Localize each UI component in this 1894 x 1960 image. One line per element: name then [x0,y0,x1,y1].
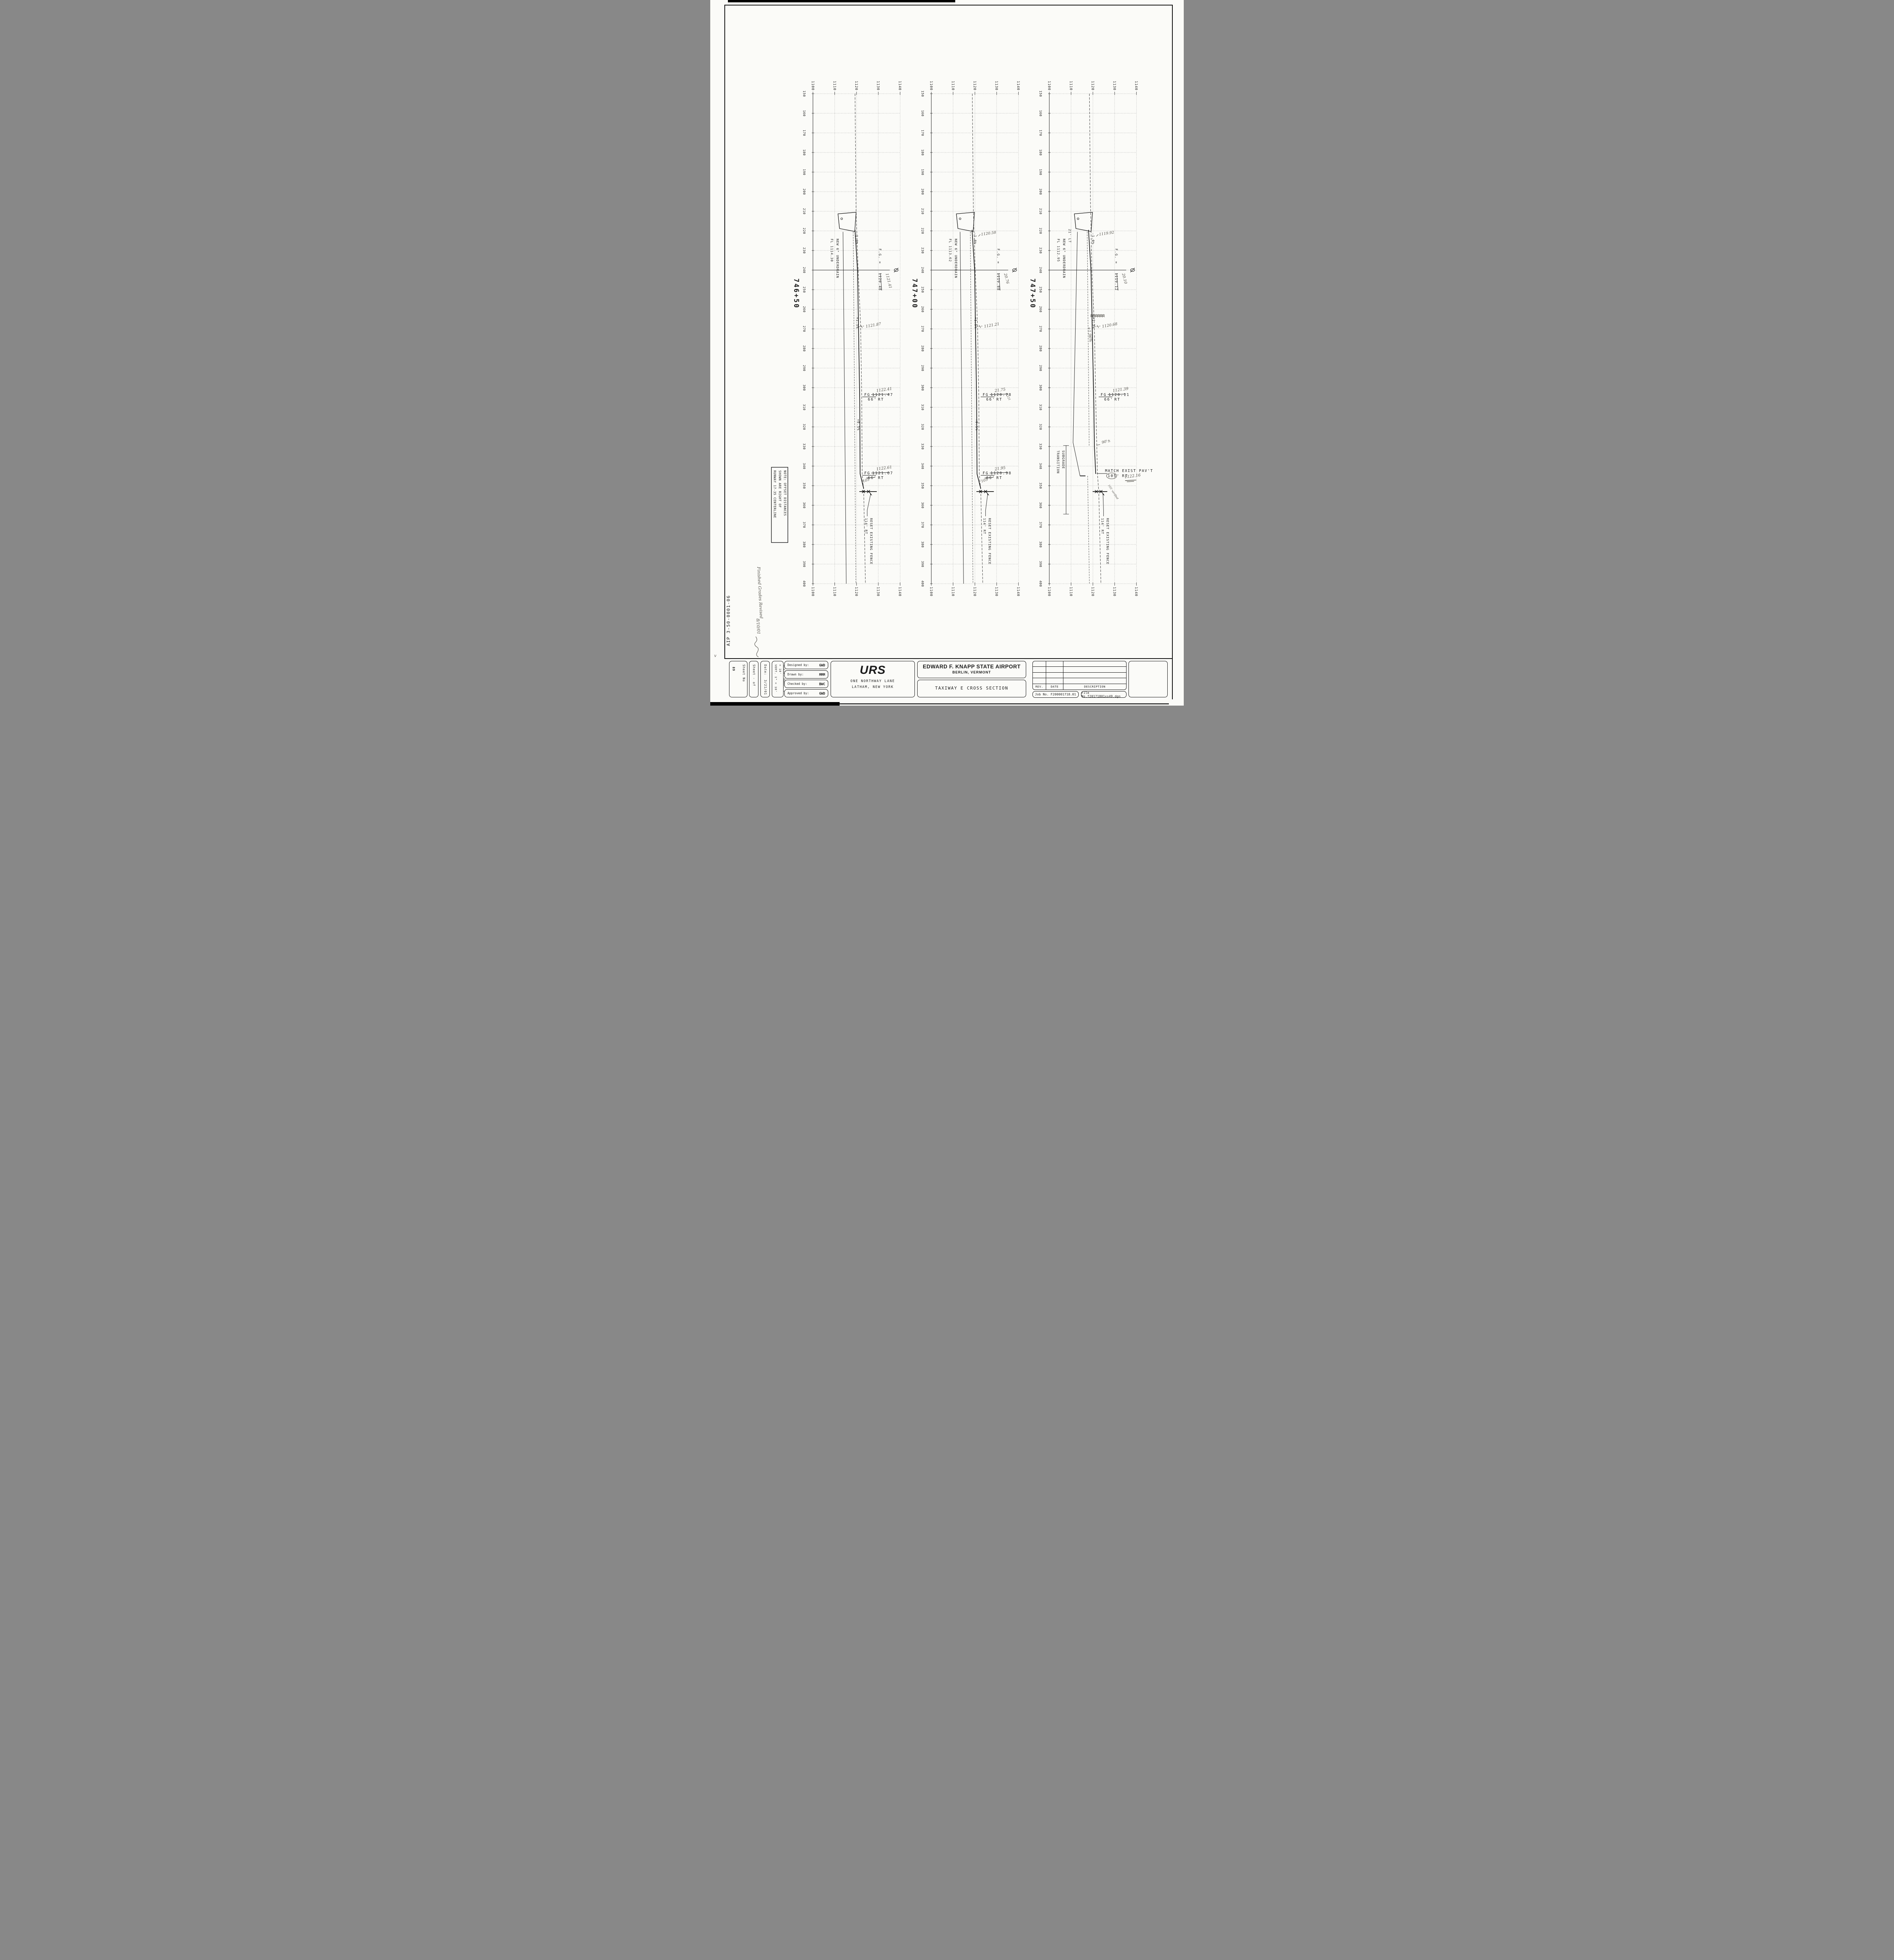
station-label: 150 [802,91,806,97]
designed-by-value: GWD [819,663,825,667]
station-label: 200 [802,189,806,195]
station-label: 230 [1039,247,1043,254]
station-label: 300 [1039,385,1043,391]
approved-by-box: Approved by:GWD [784,689,828,697]
drawn-by-box: Drawn by:MMM [784,670,828,679]
station-label: 220 [1039,228,1043,234]
underdrain-trench-line [843,232,846,584]
underdrain-pipe-circle [841,218,843,220]
station-label: 300 [921,385,925,391]
elevation-label-top: 1120 [854,81,858,91]
existing-pavement-dashed-line [1088,476,1090,584]
revision-table: REV. DATE DESCRIPTION [1032,661,1127,690]
station-label: 330 [921,443,925,450]
rev-cell [1033,678,1046,684]
drawing-title-box: TAXIWAY E CROSS SECTION [917,680,1026,697]
rev-cell [1046,673,1063,678]
station-label: 320 [1039,424,1043,430]
elevation-label-bottom: 1100 [1047,587,1051,597]
station-label: 310 [1039,404,1043,410]
margin-check-mark: v [714,654,717,658]
designed-by-box: Designed by:GWD [784,661,828,669]
elevation-label-bottom: 1110 [832,587,836,597]
elevation-label-bottom: 1140 [1134,587,1138,597]
elevation-label-top: 1140 [1134,81,1138,91]
rev-cell [1033,667,1046,672]
underdrain-lt-note: 21' LT [1068,229,1072,243]
fg-callout-printed-value: 1120.98 [991,471,1012,475]
station-label: 290 [921,365,925,371]
elevation-label-top: 1130 [994,81,998,91]
station-label: 260 [921,306,925,312]
station-label: 320 [802,424,806,430]
underdrain-label: NEW 6" UNDERDRAIN [1062,239,1066,278]
designed-by-label: Designed by: [787,663,809,667]
elevation-label-top: 1140 [898,81,902,91]
fg-cl-printed-value: 1120.48 [878,273,882,291]
station-label: 210 [921,208,925,214]
date-value: Date: 3/21/01 [764,664,767,695]
station-label: 270 [802,326,806,332]
rev-cell [1063,667,1126,672]
station-label: 350 [802,483,806,489]
fg-callout-prefix: FG [864,393,870,397]
rev-header-date: DATE [1046,684,1063,690]
dim-note-handwritten: 90'± [1101,439,1111,445]
fg-cl-printed-value: 1119.12 [1114,273,1118,291]
station-label: 200 [1039,189,1043,195]
station-label: 330 [802,443,806,450]
rev-cell [1063,673,1126,678]
station-label: 360 [921,502,925,508]
station-label: 310 [921,404,925,410]
station-label: 290 [802,365,806,371]
fg-callout-revised-handwritten: 21.95 [994,466,1006,472]
fg-cl-revised-handwritten: 20.10 [1121,272,1128,284]
underdrain-trench-line [960,232,963,584]
checked-by-box: Checked by:BWC [784,680,828,688]
note-line: SHOWN ARE RIGHT OF [778,470,782,508]
reset-fence-offset: 114' RT [1101,518,1105,535]
date-box: Date: 3/21/01 [760,661,770,697]
slope-label-left: -1.0% [1091,233,1095,245]
elevation-label-top: 1110 [832,81,836,91]
fg-cl-revised-handwritten: 20.76 [1003,272,1010,284]
sheet-of-label: Sheet - of [752,664,756,686]
checked-by-value: BWC [819,682,825,686]
fg-callout-rt: RT [1114,397,1120,402]
match-exist-offset: 105' [1108,474,1120,478]
elevation-label-bottom: 1110 [951,587,954,597]
scale-box: Scale: HORZ. 1" = 10'VERT. 1" = 10' [772,661,784,697]
firm-logo: URS [831,664,914,676]
fg-callout-revised-handwritten: 21.75 [994,387,1006,393]
station-label: 250 [921,287,925,293]
station-label: 210 [1039,208,1043,214]
project-location: BERLIN, VERMONT [918,670,1026,674]
checked-by-label: Checked by: [787,682,807,686]
fg-cl-label: F.G. = [878,249,882,264]
sheet-number-box: 89 Sheet No [729,661,747,697]
elevation-label-bottom: 1130 [876,587,880,597]
station-label: 220 [921,228,925,234]
station-label: 280 [921,345,925,352]
underdrain-outline [1074,212,1092,232]
station-label: 240 [802,267,806,273]
fg-callout-prefix: FG [983,393,989,397]
elevation-label-bottom: 1120 [854,587,858,597]
station-label: 390 [921,561,925,567]
note-line: NOTE: OFFSET DISTANCES [783,470,787,516]
sheet-number: 89 [732,667,735,671]
rev-cell [1046,678,1063,684]
station-label: 360 [802,502,806,508]
reset-fence-label: RESET EXISTING FENCE [869,518,873,565]
fg-cl-printed-value: 1119.88 [996,273,1000,291]
station-label: 390 [1039,561,1043,567]
underdrain-outline [838,212,856,232]
underdrain-label: NEW 6" UNDERDRAIN [954,239,958,278]
fg-callout-rt: RT [996,476,1002,480]
station-label: 280 [1039,345,1043,352]
fg-cl-revised-handwritten: 1121.41 [885,273,893,289]
match-exist-label: MATCH EXIST PAV'T [1105,469,1153,473]
sheet-of-box: Sheet - of [749,661,758,697]
project-name-box: EDWARD F. KNAPP STATE AIRPORT BERLIN, VE… [917,661,1026,678]
cross-section-plot: 1100110011101110112011201130113011401140… [710,0,1184,706]
elevation-label-bottom: 1120 [1090,587,1094,597]
section-station-label: 747+50 [1029,278,1036,309]
station-label: 230 [802,247,806,254]
fence-leader [985,494,987,510]
elevation-label-top: 1110 [1069,81,1072,91]
station-label: 380 [802,541,806,548]
fence-leader-arrowhead [870,492,872,496]
station-label: 400 [921,581,925,587]
fg-callout-rt: RT [996,397,1002,402]
station-label: 180 [802,149,806,156]
subgrade-label: TRANSITION [1056,450,1060,474]
station-label: 170 [1039,130,1043,136]
station-label: 250 [802,287,806,293]
exist-elev-handwritten-mid: 1121.21 [984,322,1000,329]
elevation-label-top: 1100 [1047,81,1051,91]
station-label: 310 [802,404,806,410]
rev-cell [1033,661,1046,667]
station-label: 160 [921,110,925,116]
fg-callout-rt: RT [878,476,884,480]
elevation-label-top: 1120 [1090,81,1094,91]
revised-elev-underline [1127,481,1134,482]
station-label: 180 [1039,149,1043,156]
reset-fence-label: RESET EXISTING FENCE [988,518,992,565]
station-label: 380 [1039,541,1043,548]
fg-callout-revised-handwritten: 1122.41 [876,387,893,393]
aip-project-number: AIP 3-50-0001-06 [726,595,731,646]
fg-callout-printed-value: 1121.67 [872,471,893,475]
station-label: 350 [921,483,925,489]
section-station-label: 747+00 [911,278,918,309]
station-label: 360 [1039,502,1043,508]
fg-callout-prefix: FG [1101,393,1107,397]
station-label: 380 [921,541,925,548]
margin-note-handwritten: Finished Grades Revised [756,566,764,619]
dim-note-tick [1097,445,1100,445]
fg-callout-revised-handwritten: 1121.39 [1112,387,1129,393]
rev-cell [1033,673,1046,678]
station-label: 400 [1039,581,1043,587]
file-number: File No.f20171801xs49.dgn [1081,691,1126,698]
verified-scribble-handwritten: 105' verified [1107,484,1119,500]
station-label: 180 [921,149,925,156]
elevation-label-bottom: 1110 [1069,587,1072,597]
rev-header-rev: REV. [1033,684,1046,690]
proposed-grade-line [855,230,864,489]
rev-cell [1063,678,1126,684]
elevation-label-bottom: 1140 [1016,587,1020,597]
revised-elev-underline [1125,480,1136,481]
underdrain-invert-elevation: FL 1113.62 [949,239,952,262]
fg-cl-label: F.G. = [996,249,1000,264]
station-label: 300 [802,385,806,391]
fg-callout-offset: 66' [1104,397,1113,402]
underdrain-invert-elevation: FL 1114.30 [830,239,834,262]
underdrain-pipe-circle [1077,218,1079,220]
station-label: 190 [802,169,806,175]
station-label: 340 [1039,463,1043,469]
slope-label-mid: +1.5% [856,317,860,329]
elevation-label-bottom: 1130 [994,587,998,597]
station-label: 220 [802,228,806,234]
exist-elev-handwritten-top: 1119.92 [1099,230,1114,237]
fg-callout-revised-handwritten: 1122.61 [876,465,893,472]
exist-elev-handwritten-top: 1120.58 [981,230,996,237]
exist-elev-tick [1096,234,1098,236]
rev-cell [1046,661,1063,667]
elevation-label-top: 1100 [929,81,933,91]
station-label: 330 [1039,443,1043,450]
station-label: 280 [802,345,806,352]
station-label: 270 [1039,326,1043,332]
scribble-mark [1090,314,1105,317]
station-label: 320 [921,424,925,430]
elevation-label-bottom: 1120 [972,587,976,597]
fence-leader [867,494,871,510]
margin-note-date-handwritten: 8/10/01 [755,619,761,635]
station-label: 190 [1039,169,1043,175]
proposed-grade-line [972,230,981,489]
subgrade-label: SUBGRADE [1061,450,1065,469]
rev-header-description: DESCRIPTION [1063,684,1126,690]
underdrain-label: NEW 6" UNDERDRAIN [836,239,840,278]
station-label: 370 [1039,522,1043,528]
sheet-number-label: Sheet No [742,664,746,682]
drawing-sheet: 1100110011101110112011201130113011401140… [710,0,1184,706]
drawing-title: TAXIWAY E CROSS SECTION [918,680,1026,697]
drawn-by-label: Drawn by: [787,673,804,676]
station-label: 340 [802,463,806,469]
stamp-box-empty [1128,661,1168,697]
station-label: 190 [921,169,925,175]
elevation-label-top: 1140 [1016,81,1020,91]
fg-callout-rt: RT [878,397,884,402]
station-label: 160 [1039,110,1043,116]
slope-label-left: -1.0% [973,233,977,245]
elevation-label-top: 1130 [876,81,880,91]
station-label: 250 [1039,287,1043,293]
job-number-box: Job No. F200001718.01 [1032,691,1079,698]
trench-edge-dashed-line [971,232,973,584]
rev-cell [1063,661,1126,667]
fence-leader-arrowhead [987,492,989,496]
underdrain-outline [956,212,974,232]
station-label: 170 [802,130,806,136]
elevation-label-bottom: 1100 [811,587,815,597]
fg-cl-label: F.G. = [1114,249,1118,264]
elevation-label-bottom: 1100 [929,587,933,597]
approved-by-value: GWD [819,691,825,695]
project-name: EDWARD F. KNAPP STATE AIRPORT [918,664,1026,670]
title-block: 89 Sheet No Sheet - of Date: 3/21/01 Sca… [724,658,1172,699]
section-station-label: 746+50 [793,278,800,309]
station-label: 270 [921,326,925,332]
reset-fence-offset: 114' RT [864,518,868,535]
fg-callout-offset: 66' [986,397,995,402]
file-number-box: File No.f20171801xs49.dgn [1081,691,1127,698]
station-label: 260 [1039,306,1043,312]
station-label: 200 [921,189,925,195]
station-label: 170 [921,130,925,136]
elevation-label-top: 1100 [811,81,815,91]
station-label: 350 [1039,483,1043,489]
fg-callout-prefix: FG [983,471,989,475]
fg-callout-offset: 66' [868,397,877,402]
station-label: 240 [1039,267,1043,273]
exist-elev-handwritten-mid: 1120.68 [1102,322,1118,329]
station-label: 260 [802,306,806,312]
station-label: 400 [802,581,806,587]
station-label: 240 [921,267,925,273]
drawn-by-value: MMM [819,673,825,677]
fg-callout-printed-value: 1121.47 [872,393,893,397]
underdrain-trench-line [1073,232,1080,476]
fg-callout-printed-value: 1120.11 [1108,393,1130,397]
station-label: 210 [802,208,806,214]
elevation-label-bottom: 1130 [1112,587,1116,597]
margin-note-initials-scribble [755,637,758,657]
station-label: 150 [1039,91,1043,97]
station-label: 230 [921,247,925,254]
existing-ground-line [972,94,983,584]
elevation-label-top: 1130 [1112,81,1116,91]
elevation-label-bottom: 1140 [898,587,902,597]
rev-cell [1046,667,1063,672]
proposed-grade-line [1089,230,1096,474]
station-label: 160 [802,110,806,116]
fg-offset-revised-handwritten: 105 [862,477,870,484]
fg-offset-revised-handwritten: 105 [981,477,989,484]
reset-fence-label: RESET EXISTING FENCE [1106,518,1110,565]
station-label: 290 [1039,365,1043,371]
underdrain-pipe-circle [959,218,961,220]
fg-callout-prefix: FG [864,471,870,475]
reset-fence-offset: 114' RT [983,518,987,535]
exist-elev-handwritten-mid: 1121.87 [865,322,882,329]
underdrain-invert-elevation: FL 1112.95 [1057,239,1061,262]
station-label: 370 [802,522,806,528]
station-label: 370 [921,522,925,528]
job-number: Job No. F200001718.01 [1035,693,1076,696]
fence-leader [1103,494,1103,510]
elevation-label-top: 1110 [951,81,954,91]
station-label: 390 [802,561,806,567]
fence-leader-arrowhead [1102,492,1105,496]
station-label: 340 [921,463,925,469]
approved-by-label: Approved by: [787,691,809,695]
trench-edge-dashed-line [853,232,856,584]
firm-box: URS ONE NORTHWAY LANELATHAM, NEW YORK [831,661,915,697]
exist-elev-tick [978,234,980,236]
note-line: RUNWAY 17-35 CENTERLINE [773,470,776,518]
firm-address: ONE NORTHWAY LANELATHAM, NEW YORK [831,679,914,690]
elevation-label-top: 1120 [972,81,976,91]
station-label: 150 [921,91,925,97]
